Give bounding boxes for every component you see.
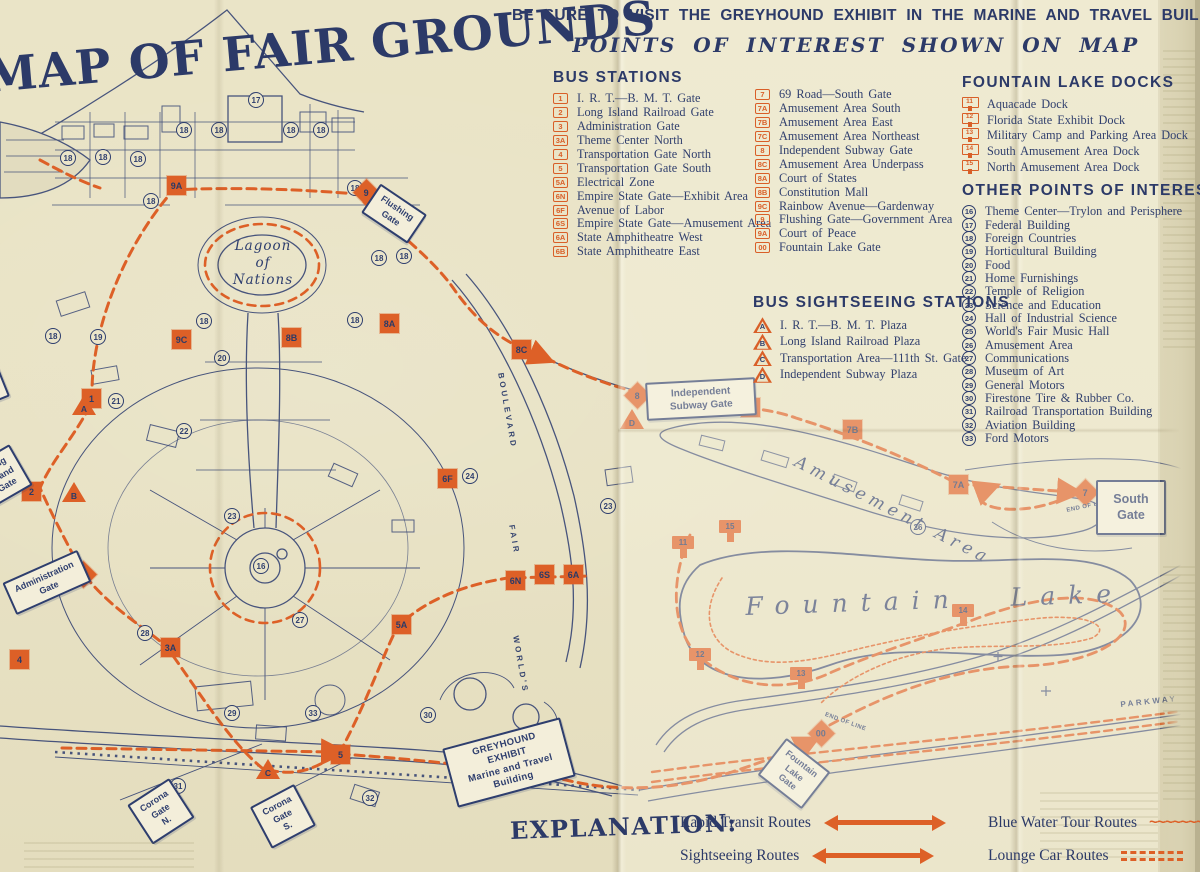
point-number-badge: 16	[962, 205, 976, 219]
station-label: Long Island Railroad Gate	[577, 105, 714, 120]
legend-item: 7 69 Road—South Gate	[755, 88, 980, 102]
legend-item: 6B State Amphitheatre East	[553, 245, 763, 259]
fountain-lake-docks-legend: FOUNTAIN LAKE DOCKS 11 Aquacade Dock 12 …	[962, 74, 1192, 175]
point-number-badge: 33	[962, 432, 976, 446]
route-type-label: Sightseeing Routes	[680, 847, 799, 865]
station-number-badge: 7C	[755, 131, 770, 142]
legend-item: 33 Ford Motors	[962, 432, 1197, 445]
point-number-badge: 28	[962, 365, 976, 379]
station-label: Fountain Lake Gate	[779, 240, 881, 255]
point-number-badge: 17	[962, 218, 976, 232]
legend-item: 20 Food	[962, 258, 1197, 271]
point-number-badge: 21	[962, 271, 976, 285]
station-number-badge: 6F	[553, 205, 568, 216]
station-label: Court of States	[779, 171, 857, 186]
legend-item: 3 Administration Gate	[553, 120, 763, 134]
station-number-badge: 3	[553, 121, 568, 132]
legend-item: 4 Transportation Gate North	[553, 148, 763, 162]
station-label: 69 Road—South Gate	[779, 87, 892, 102]
station-label: Amusement Area Northeast	[779, 129, 920, 144]
legend-item: 6N Empire State Gate—Exhibit Area	[553, 189, 763, 203]
dock-number-badge: 15	[962, 160, 978, 175]
bus-stations-list-col2: 7 69 Road—South Gate 7A Amusement Area S…	[755, 88, 980, 255]
station-number-badge: 9	[755, 214, 770, 225]
legend-item: 00 Fountain Lake Gate	[755, 241, 980, 255]
legend-item: 15 North Amusement Area Dock	[962, 159, 1192, 175]
legend-item: 8C Amusement Area Underpass	[755, 157, 980, 171]
legend-item: 8 Independent Subway Gate	[755, 144, 980, 158]
banner-line2: POINTS OF INTEREST SHOWN ON MAP	[512, 33, 1200, 57]
docks-list: 11 Aquacade Dock 12 Florida State Exhibi…	[962, 97, 1192, 175]
fountain-lake-docks-title: FOUNTAIN LAKE DOCKS	[962, 74, 1192, 92]
station-label: I. R. T.—B. M. T. Gate	[577, 91, 701, 106]
dock-number-badge: 14	[962, 144, 978, 159]
station-number-badge: 6N	[553, 191, 568, 202]
station-number-badge: 6S	[553, 218, 568, 229]
station-number-badge: 9C	[755, 201, 770, 212]
legend-item: 8A Court of States	[755, 171, 980, 185]
station-number-badge: 9A	[755, 228, 770, 239]
dock-label: Military Camp and Parking Area Dock	[987, 128, 1188, 143]
station-number-badge: 6A	[553, 232, 568, 243]
point-number-badge: 31	[962, 405, 976, 419]
fair-grounds-map-page: 1718181818181818181818181818181920212223…	[0, 0, 1200, 872]
station-label: Flushing Gate—Government Area	[779, 212, 952, 227]
explanation-legend: Rapid Transit Routes Sightseeing Routes …	[680, 806, 1200, 872]
sightseeing-label: Long Island Railroad Plaza	[780, 334, 920, 349]
legend-item: 13 Military Camp and Parking Area Dock	[962, 128, 1192, 144]
legend-item: 29 General Motors	[962, 378, 1197, 391]
sightseeing-label: I. R. T.—B. M. T. Plaza	[780, 318, 907, 333]
bus-sightseeing-legend: BUS SIGHTSEEING STATIONS A I. R. T.—B. M…	[753, 294, 993, 383]
station-label: Amusement Area East	[779, 115, 893, 130]
station-label: Empire State Gate—Amusement Area	[577, 216, 771, 231]
legend-item: 26 Amusement Area	[962, 338, 1197, 351]
route-type-label: Lounge Car Routes	[988, 847, 1109, 865]
legend-item: 32 Aviation Building	[962, 419, 1197, 432]
station-number-badge: 1	[553, 93, 568, 104]
station-number-badge: 8	[755, 145, 770, 156]
legend-item: 6S Empire State Gate—Amusement Area	[553, 217, 763, 231]
station-label: Empire State Gate—Exhibit Area	[577, 189, 748, 204]
bus-stations-legend: BUS STATIONS 1 I. R. T.—B. M. T. Gate 2 …	[553, 69, 763, 259]
legend-item: 7C Amusement Area Northeast	[755, 130, 980, 144]
bus-stations-title: BUS STATIONS	[553, 69, 763, 87]
route-symbol-icon	[1121, 851, 1183, 861]
dock-number-badge: 11	[962, 97, 978, 112]
dock-label: Florida State Exhibit Dock	[987, 113, 1125, 128]
legend-item: 1 I. R. T.—B. M. T. Gate	[553, 92, 763, 106]
station-label: Electrical Zone	[577, 175, 654, 190]
legend-item: 16 Theme Center—Trylon and Perisphere	[962, 205, 1197, 218]
bus-stations-legend-col2: 7 69 Road—South Gate 7A Amusement Area S…	[755, 88, 980, 255]
station-number-badge: 4	[553, 149, 568, 160]
legend-item: 12 Florida State Exhibit Dock	[962, 113, 1192, 129]
explanation-item: Sightseeing Routes	[680, 839, 980, 872]
banner-line1: BE SURE TO VISIT THE GREYHOUND EXHIBIT I…	[512, 7, 1200, 25]
point-number-badge: 32	[962, 418, 976, 432]
station-label: Rainbow Avenue—Gardenway	[779, 199, 934, 214]
point-number-badge: 30	[962, 391, 976, 405]
sightseeing-label: Independent Subway Plaza	[780, 367, 917, 382]
station-number-badge: 8B	[755, 187, 770, 198]
point-number-badge: 20	[962, 258, 976, 272]
dock-label: North Amusement Area Dock	[987, 160, 1140, 175]
station-label: Amusement Area South	[779, 101, 901, 116]
dock-label: South Amusement Area Dock	[987, 144, 1140, 159]
bus-stations-list: 1 I. R. T.—B. M. T. Gate 2 Long Island R…	[553, 92, 763, 259]
legend-item: 23 Science and Education	[962, 298, 1197, 311]
legend-item: 7A Amusement Area South	[755, 102, 980, 116]
sightseeing-label: Transportation Area—111th St. Gate	[780, 351, 966, 366]
point-number-badge: 18	[962, 231, 976, 245]
point-label: Ford Motors	[985, 431, 1049, 446]
sightseeing-letter-badge: A	[753, 317, 772, 333]
sightseeing-letter-badge: D	[753, 367, 772, 383]
legend-item: 14 South Amusement Area Dock	[962, 144, 1192, 160]
dock-number-badge: 12	[962, 113, 978, 128]
point-number-badge: 23	[962, 298, 976, 312]
station-number-badge: 6B	[553, 246, 568, 257]
legend-item: 11 Aquacade Dock	[962, 97, 1192, 113]
legend-item: 9 Flushing Gate—Government Area	[755, 213, 980, 227]
station-number-badge: 8A	[755, 173, 770, 184]
station-number-badge: 5A	[553, 177, 568, 188]
station-label: Theme Center North	[577, 133, 683, 148]
point-number-badge: 26	[962, 338, 976, 352]
point-number-badge: 19	[962, 245, 976, 259]
legend-item: 24 Hall of Industrial Science	[962, 312, 1197, 325]
station-number-badge: 8C	[755, 159, 770, 170]
route-symbol-icon	[837, 820, 933, 825]
sightseeing-letter-badge: B	[753, 334, 772, 350]
explanation-item: Rapid Transit Routes	[680, 806, 980, 839]
other-points-list: 16 Theme Center—Trylon and Perisphere 17…	[962, 205, 1197, 445]
legend-item: C Transportation Area—111th St. Gate	[753, 350, 993, 367]
route-type-label: Blue Water Tour Routes	[988, 814, 1137, 832]
route-type-label: Rapid Transit Routes	[680, 814, 811, 832]
legend-item: 6A State Amphitheatre West	[553, 231, 763, 245]
sightseeing-letter-badge: C	[753, 350, 772, 366]
legend-item: 9A Court of Peace	[755, 227, 980, 241]
legend-item: 3A Theme Center North	[553, 134, 763, 148]
other-points-legend: OTHER POINTS OF INTEREST 16 Theme Center…	[962, 182, 1197, 445]
legend-item: 19 Horticultural Building	[962, 245, 1197, 258]
station-number-badge: 2	[553, 107, 568, 118]
station-number-badge: 00	[755, 242, 770, 253]
station-label: Amusement Area Underpass	[779, 157, 924, 172]
station-label: Independent Subway Gate	[779, 143, 913, 158]
legend-item: 22 Temple of Religion	[962, 285, 1197, 298]
legend-item: 18 Foreign Countries	[962, 232, 1197, 245]
legend-item: 17 Federal Building	[962, 218, 1197, 231]
legend-item: 5 Transportation Gate South	[553, 161, 763, 175]
dock-label: Aquacade Dock	[987, 97, 1068, 112]
legend-item: 8B Constitution Mall	[755, 185, 980, 199]
legend-item: 7B Amusement Area East	[755, 116, 980, 130]
legend-item: 9C Rainbow Avenue—Gardenway	[755, 199, 980, 213]
station-label: Administration Gate	[577, 119, 680, 134]
legend-item: 30 Firestone Tire & Rubber Co.	[962, 392, 1197, 405]
legend-item: B Long Island Railroad Plaza	[753, 334, 993, 351]
station-number-badge: 3A	[553, 135, 568, 146]
station-label: Transportation Gate South	[577, 161, 711, 176]
route-symbol-icon	[825, 853, 921, 858]
bus-sightseeing-title: BUS SIGHTSEEING STATIONS	[753, 294, 993, 312]
station-label: State Amphitheatre East	[577, 244, 700, 259]
dock-number-badge: 13	[962, 128, 978, 143]
explanation-item: Lounge Car Routes	[988, 839, 1200, 872]
legend-item: 6F Avenue of Labor	[553, 203, 763, 217]
point-number-badge: 22	[962, 285, 976, 299]
station-label: Constitution Mall	[779, 185, 868, 200]
legend-item: 25 World's Fair Music Hall	[962, 325, 1197, 338]
station-label: Avenue of Labor	[577, 203, 664, 218]
top-banner: BE SURE TO VISIT THE GREYHOUND EXHIBIT I…	[512, 7, 1200, 57]
station-label: Transportation Gate North	[577, 147, 711, 162]
explanation-item: Blue Water Tour Routes	[988, 806, 1200, 839]
station-label: Court of Peace	[779, 226, 856, 241]
station-number-badge: 7B	[755, 117, 770, 128]
station-number-badge: 7	[755, 89, 770, 100]
bus-sightseeing-list: A I. R. T.—B. M. T. Plaza B Long Island …	[753, 317, 993, 383]
station-number-badge: 7A	[755, 103, 770, 114]
station-number-badge: 5	[553, 163, 568, 174]
point-number-badge: 27	[962, 351, 976, 365]
legend-item: A I. R. T.—B. M. T. Plaza	[753, 317, 993, 334]
other-points-title: OTHER POINTS OF INTEREST	[962, 182, 1197, 200]
route-symbol-icon	[1149, 814, 1200, 832]
legend-item: 28 Museum of Art	[962, 365, 1197, 378]
legend-item: 31 Railroad Transportation Building	[962, 405, 1197, 418]
legend-item: 2 Long Island Railroad Gate	[553, 106, 763, 120]
station-label: State Amphitheatre West	[577, 230, 703, 245]
legend-item: D Independent Subway Plaza	[753, 367, 993, 384]
legend-item: 21 Home Furnishings	[962, 272, 1197, 285]
legend-item: 5A Electrical Zone	[553, 175, 763, 189]
point-number-badge: 25	[962, 325, 976, 339]
point-number-badge: 24	[962, 311, 976, 325]
point-number-badge: 29	[962, 378, 976, 392]
legend-item: 27 Communications	[962, 352, 1197, 365]
